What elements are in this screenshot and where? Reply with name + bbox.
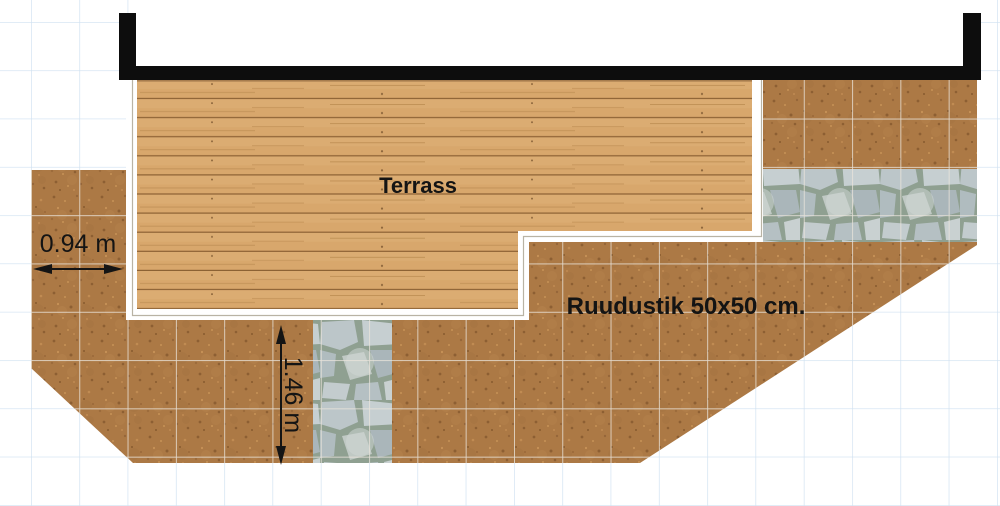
house-wall[interactable] [119, 0, 981, 80]
dimension-width-label: 0.94 m [40, 230, 116, 258]
wall-bottom [119, 66, 981, 80]
terrace-label: Terrass [379, 173, 457, 198]
house-interior [136, 0, 963, 66]
wall-right-stub [963, 13, 981, 80]
grid-size-label: Ruudustik 50x50 cm. [567, 293, 806, 320]
terrace-top-shadow [137, 80, 752, 82]
plan-drawing: Terrass Ruudustik 50x50 cm. 0.94 m 1.46 … [0, 0, 1000, 506]
garden-plan-canvas: Terrass Ruudustik 50x50 cm. 0.94 m 1.46 … [0, 0, 1000, 506]
dimension-height-label: 1.46 m [279, 357, 307, 433]
wall-left-stub [119, 13, 136, 80]
